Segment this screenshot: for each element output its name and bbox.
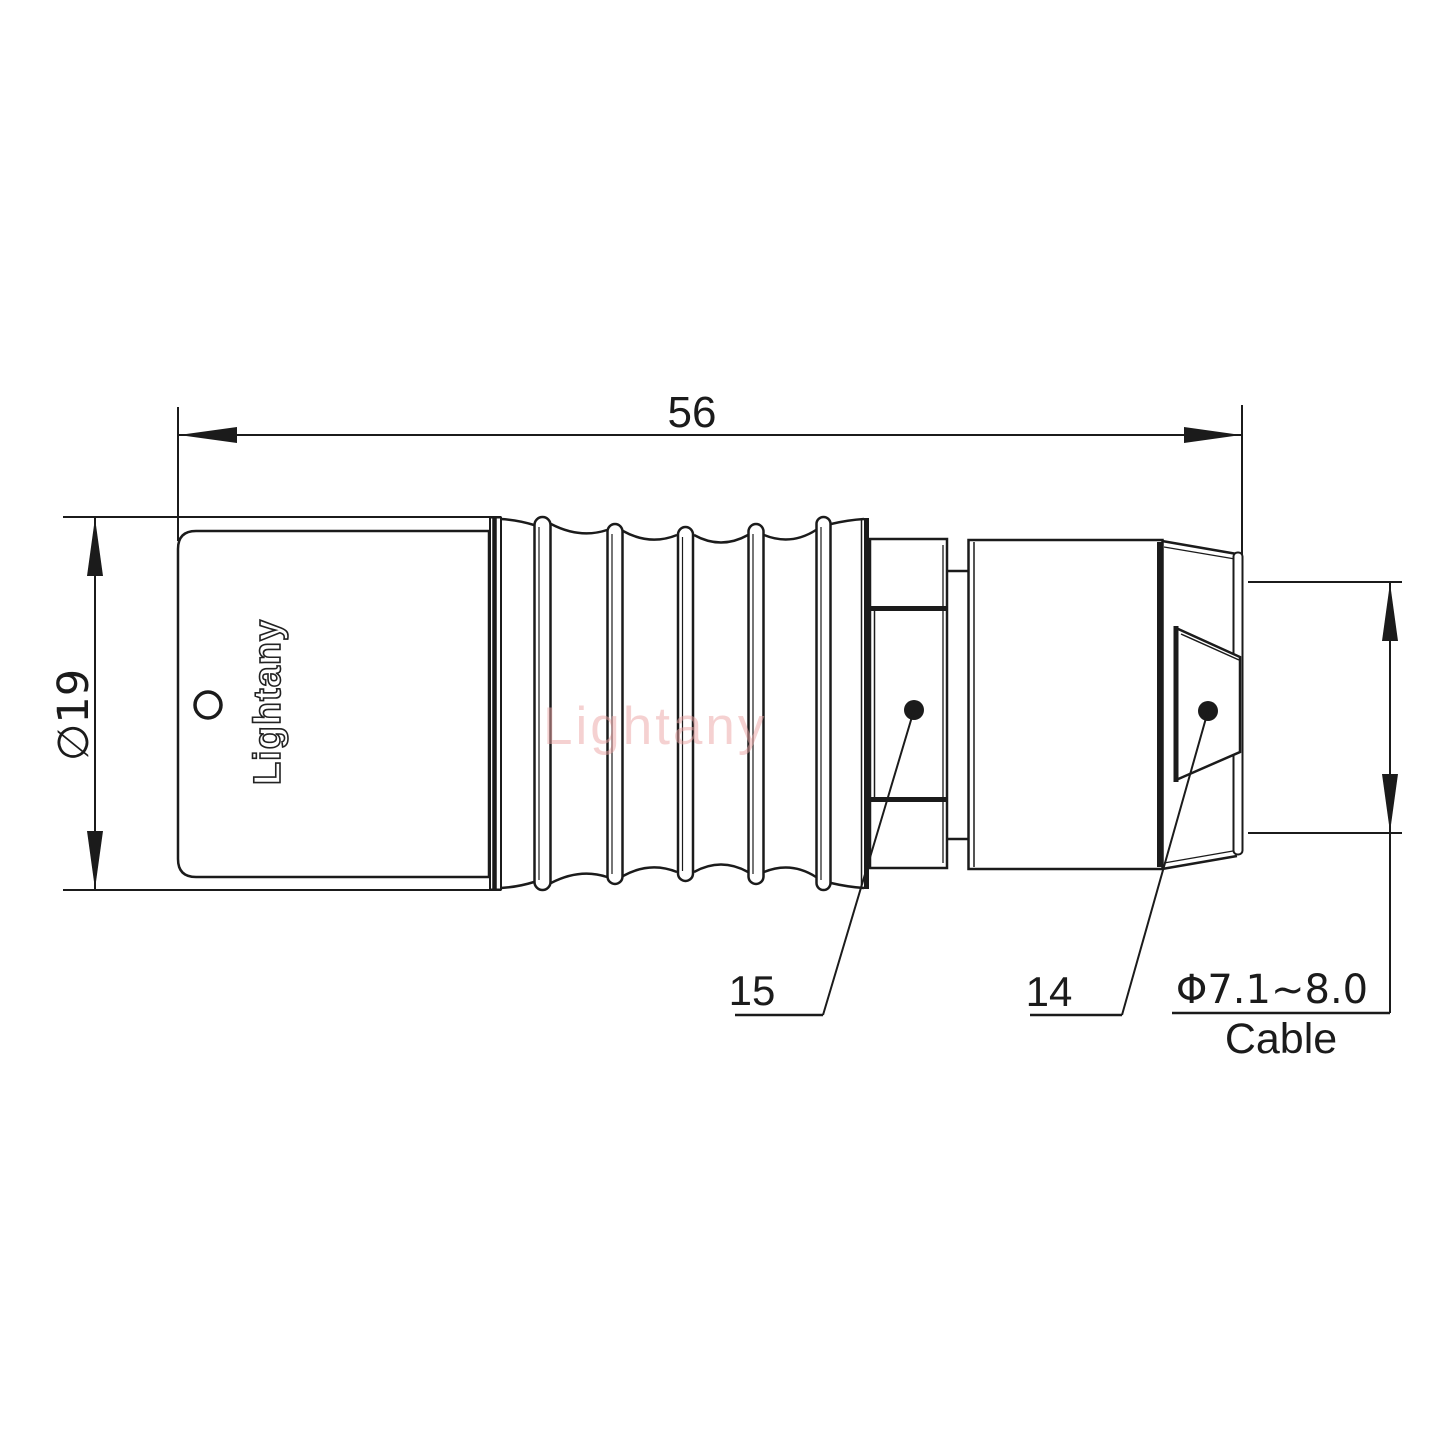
arrowhead-top bbox=[87, 518, 103, 576]
taper-bottom bbox=[1162, 856, 1237, 869]
arrowhead-bottom bbox=[1382, 774, 1398, 832]
cable-diameter-range: Φ7.1~8.0 bbox=[1176, 967, 1368, 1013]
grip-rib bbox=[817, 517, 831, 890]
overall-length-value: 56 bbox=[668, 388, 717, 437]
arrowhead-left bbox=[179, 427, 237, 443]
technical-drawing-page: 56 ∅19 bbox=[0, 0, 1440, 1440]
nut-part14 bbox=[969, 540, 1163, 869]
main-body bbox=[178, 531, 489, 877]
part15-number: 15 bbox=[729, 967, 776, 1014]
taper-bottom-inner bbox=[1164, 851, 1233, 863]
body-hole bbox=[195, 692, 221, 718]
watermark: Lightany bbox=[543, 697, 767, 756]
arrowhead-top bbox=[1382, 583, 1398, 641]
taper-top bbox=[1162, 541, 1237, 554]
cable-label: Cable bbox=[1225, 1015, 1337, 1063]
arrowhead-bottom bbox=[87, 831, 103, 889]
outer-diameter-value: ∅19 bbox=[49, 669, 99, 761]
part14-number: 14 bbox=[1026, 968, 1073, 1015]
connector-drawing-svg: 56 ∅19 bbox=[0, 0, 1440, 1440]
body-engraving: Lightany bbox=[247, 619, 289, 785]
arrowhead-right bbox=[1184, 427, 1241, 443]
